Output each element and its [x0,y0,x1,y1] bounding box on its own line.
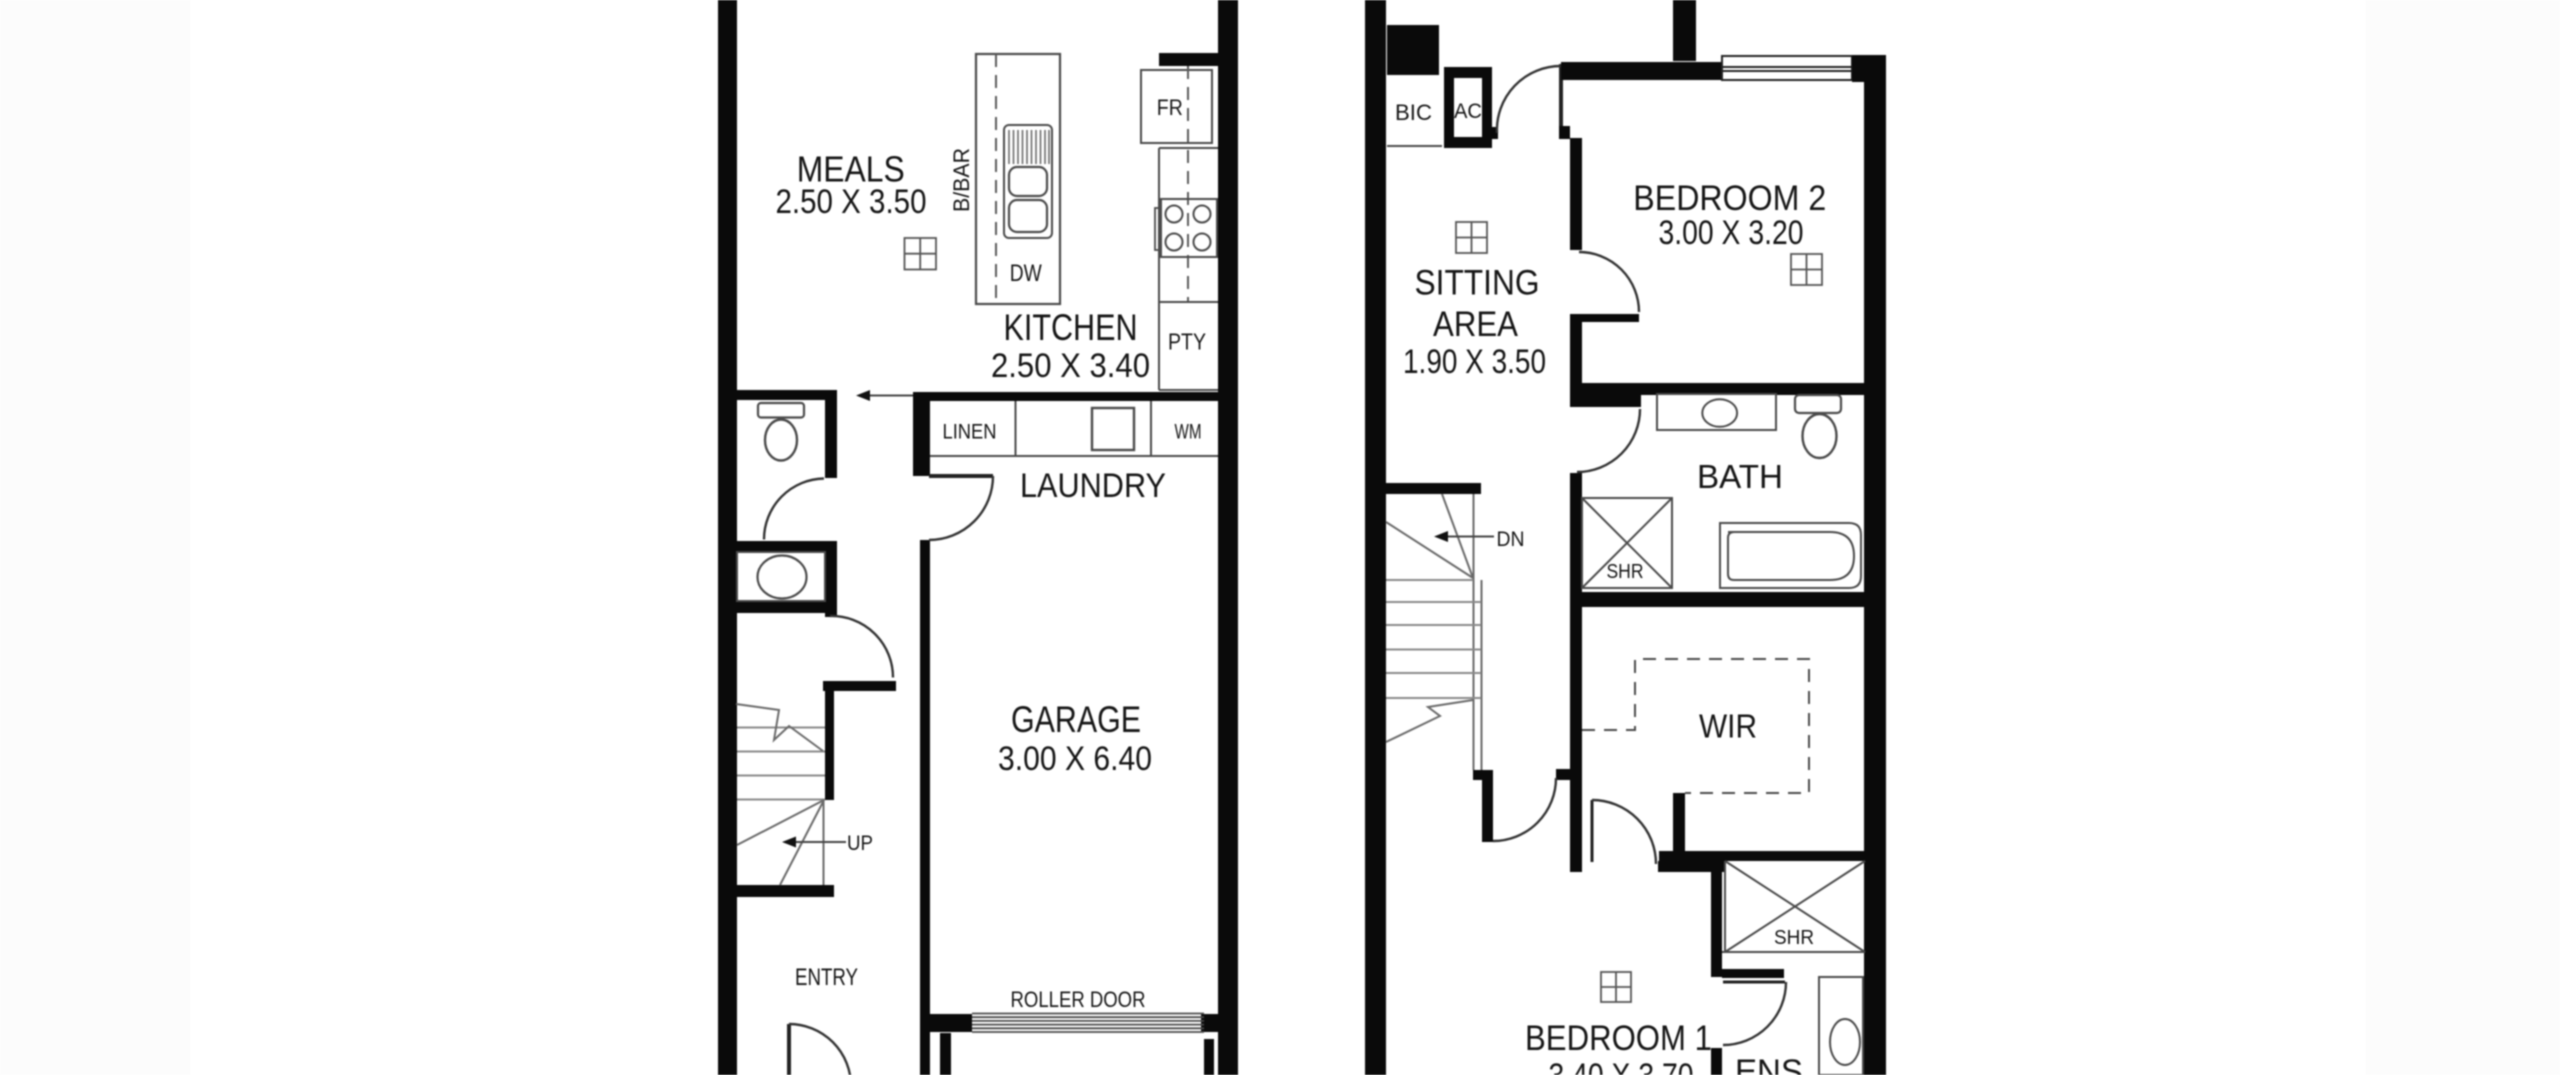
svg-text:2.50 X 3.40: 2.50 X 3.40 [991,347,1150,385]
svg-text:3.40 X 3.70: 3.40 X 3.70 [1549,1057,1694,1075]
svg-text:FR: FR [1157,95,1183,120]
svg-text:3.00 X 6.40: 3.00 X 6.40 [998,740,1152,778]
svg-text:ENS: ENS [1735,1053,1803,1075]
svg-text:BATH: BATH [1697,458,1783,495]
svg-text:BEDROOM 1: BEDROOM 1 [1525,1019,1712,1058]
svg-text:1.90 X 3.50: 1.90 X 3.50 [1403,343,1546,381]
svg-text:LINEN: LINEN [943,421,997,444]
svg-text:UP: UP [847,832,873,855]
svg-text:BIC: BIC [1395,100,1432,125]
svg-text:DN: DN [1497,528,1525,551]
svg-text:DW: DW [1010,260,1042,287]
svg-text:AREA: AREA [1433,305,1519,344]
svg-text:SITTING: SITTING [1415,264,1540,303]
svg-text:B/BAR: B/BAR [949,148,974,212]
svg-text:3.00 X 3.20: 3.00 X 3.20 [1659,214,1804,252]
svg-text:PTY: PTY [1168,329,1206,355]
svg-text:ENTRY: ENTRY [795,964,858,991]
svg-text:WIR: WIR [1699,708,1757,745]
svg-text:ROLLER DOOR: ROLLER DOOR [1011,987,1146,1012]
svg-text:2.50 X 3.50: 2.50 X 3.50 [776,183,927,221]
svg-text:SHR: SHR [1774,927,1814,949]
svg-text:BEDROOM 2: BEDROOM 2 [1633,179,1826,218]
svg-text:AC: AC [1454,100,1482,123]
svg-text:SHR: SHR [1607,561,1644,583]
svg-text:WM: WM [1175,421,1202,444]
svg-text:LAUNDRY: LAUNDRY [1020,467,1166,505]
svg-text:GARAGE: GARAGE [1011,699,1141,740]
svg-text:KITCHEN: KITCHEN [1004,307,1138,348]
